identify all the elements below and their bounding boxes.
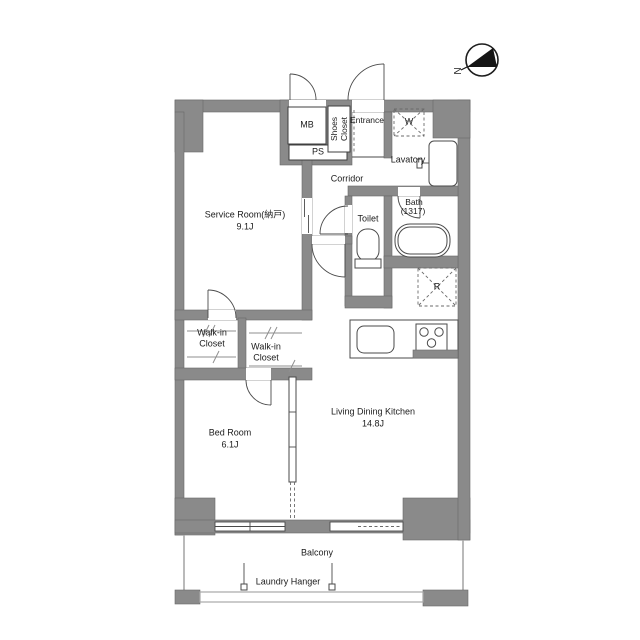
label-ldk-size: 14.8J [362, 419, 384, 430]
label-service-room-size: 9.1J [236, 222, 253, 233]
balcony-structure [175, 535, 468, 606]
bedroom-door-arc [246, 380, 271, 405]
toilet-fixture [355, 229, 381, 268]
label-walk-in-closet-right: Walk-in Closet [251, 341, 281, 362]
label-balcony: Balcony [301, 548, 333, 559]
entrance-door-arc [348, 64, 384, 100]
ldk-door-arc [312, 244, 345, 277]
label-refrigerator: R [434, 282, 441, 293]
kitchen-sink [357, 326, 394, 353]
label-toilet: Toilet [357, 214, 378, 225]
label-corridor: Corridor [331, 174, 364, 185]
compass-icon [461, 44, 498, 76]
label-north: N [450, 67, 462, 74]
label-ps: PS [312, 147, 324, 158]
kitchen-counter [350, 320, 458, 358]
counter-edge [413, 350, 458, 358]
balcony-railing [200, 592, 423, 602]
bedroom-ldk-sliding-partition [289, 377, 296, 518]
floor-plan: MB PS Shoes Closet Entrance W Lavatory C… [0, 0, 640, 640]
label-walk-in-closet-left: Walk-in Closet [197, 327, 227, 348]
label-washing-machine: W [405, 117, 414, 128]
label-bed-room-size: 6.1J [221, 440, 238, 451]
label-entrance: Entrance [350, 115, 384, 125]
label-ldk: Living Dining Kitchen [331, 407, 415, 418]
stove [416, 324, 447, 351]
label-shoes-closet: Shoes Closet [329, 117, 349, 141]
label-bath-size: (1317) [401, 206, 426, 216]
toilet-door-arc [320, 206, 348, 234]
label-laundry-hanger: Laundry Hanger [256, 577, 321, 588]
label-lavatory: Lavatory [391, 155, 426, 166]
label-mb: MB [300, 120, 314, 131]
bathtub [395, 224, 450, 257]
label-bed-room: Bed Room [209, 428, 252, 439]
mb-door-arc [290, 74, 316, 100]
label-service-room: Service Room(納戸) [205, 210, 286, 221]
floor-plan-graphic [0, 0, 640, 640]
